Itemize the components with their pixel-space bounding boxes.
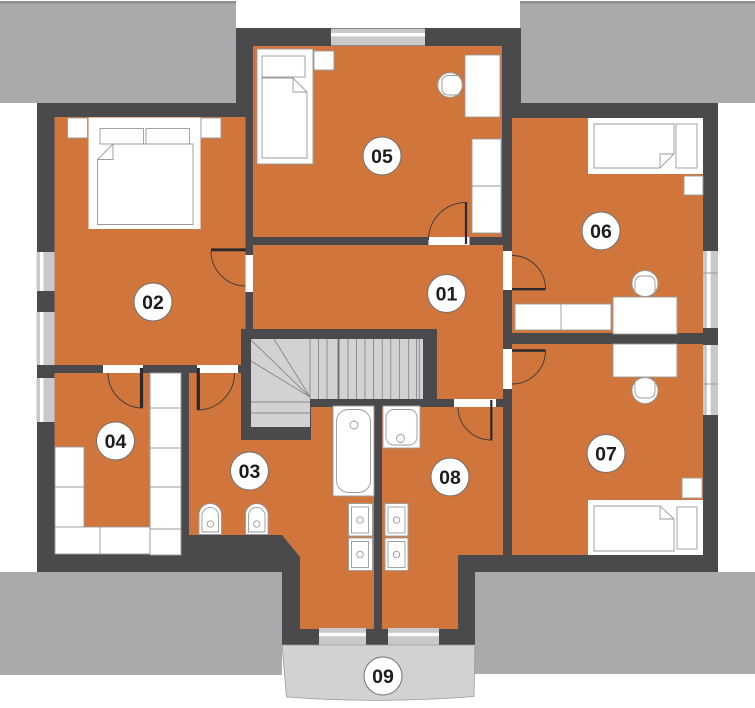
svg-text:02: 02 xyxy=(142,292,164,314)
svg-text:09: 09 xyxy=(372,666,394,688)
svg-text:06: 06 xyxy=(590,221,612,243)
svg-text:01: 01 xyxy=(436,284,458,306)
svg-text:07: 07 xyxy=(595,444,617,466)
svg-text:03: 03 xyxy=(239,461,261,483)
svg-text:08: 08 xyxy=(439,467,461,489)
svg-text:05: 05 xyxy=(371,146,393,168)
svg-text:04: 04 xyxy=(105,431,127,453)
